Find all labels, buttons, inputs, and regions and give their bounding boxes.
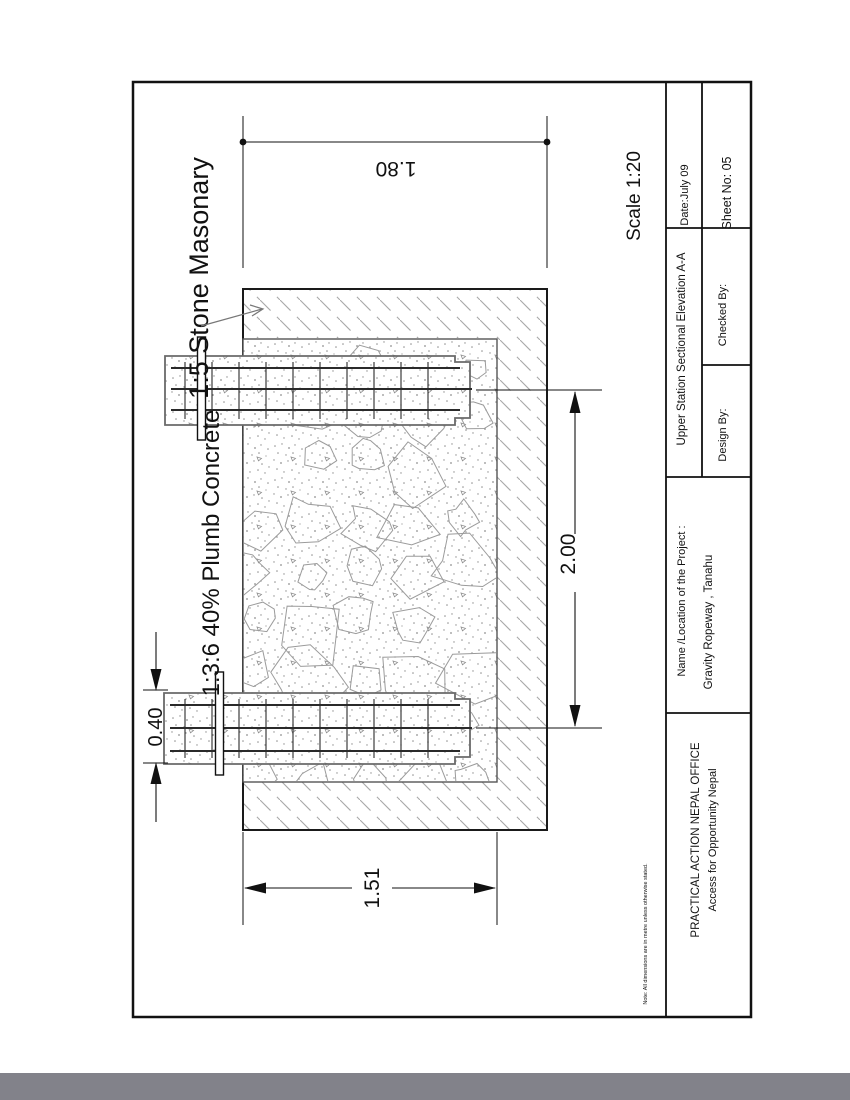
title-block-project-label: Name /Location of the Project : bbox=[676, 525, 688, 676]
dim-top-width: 1.80 bbox=[240, 116, 551, 268]
scale-label: Scale 1:20 bbox=[624, 151, 645, 241]
title-block: Date:July 09 Sheet No: 05 Upper Station … bbox=[666, 82, 751, 1017]
title-block-date: Date:July 09 bbox=[679, 164, 691, 225]
title-block-design-by: Design By: bbox=[717, 408, 729, 461]
drawing-viewer-page: { "page": { "scale_label": "Scale 1:20",… bbox=[0, 0, 850, 1100]
svg-text:1:3:6 40% Plumb Concrete: 1:3:6 40% Plumb Concrete bbox=[198, 410, 225, 697]
title-block-sheet-no: Sheet No: 05 bbox=[720, 156, 734, 229]
dim-body-height-value: 2.00 bbox=[557, 534, 580, 575]
footer-bar bbox=[0, 1073, 850, 1100]
title-block-project-value: Gravity Ropeway , Tanahu bbox=[703, 555, 715, 690]
title-block-drawing-title: Upper Station Sectional Elevation A-A bbox=[676, 252, 688, 445]
dim-top-width-value: 1.80 bbox=[376, 157, 417, 180]
svg-text:1:5 Stone Masonary: 1:5 Stone Masonary bbox=[184, 157, 214, 399]
dim-slab-thickness: 0.40 bbox=[143, 632, 168, 822]
dimension-note: Note: All dimensions are in metre unless… bbox=[643, 863, 649, 1005]
title-block-org-line1: PRACTICAL ACTION NEPAL OFFICE bbox=[690, 742, 702, 937]
dim-bottom-width-value: 1.51 bbox=[361, 868, 384, 909]
dim-bottom-width: 1.51 bbox=[243, 832, 497, 925]
label-plumb-concrete: 1:3:6 40% Plumb Concrete bbox=[198, 410, 225, 697]
title-block-checked-by: Checked By: bbox=[717, 284, 729, 346]
drawing-canvas: 1.80 2.00 0.40 1.51 1:5 Stone Masonary 1… bbox=[0, 0, 850, 1100]
title-block-org-line2: Access for Opportunity Nepal bbox=[707, 768, 719, 911]
dim-slab-thickness-value: 0.40 bbox=[145, 708, 167, 747]
